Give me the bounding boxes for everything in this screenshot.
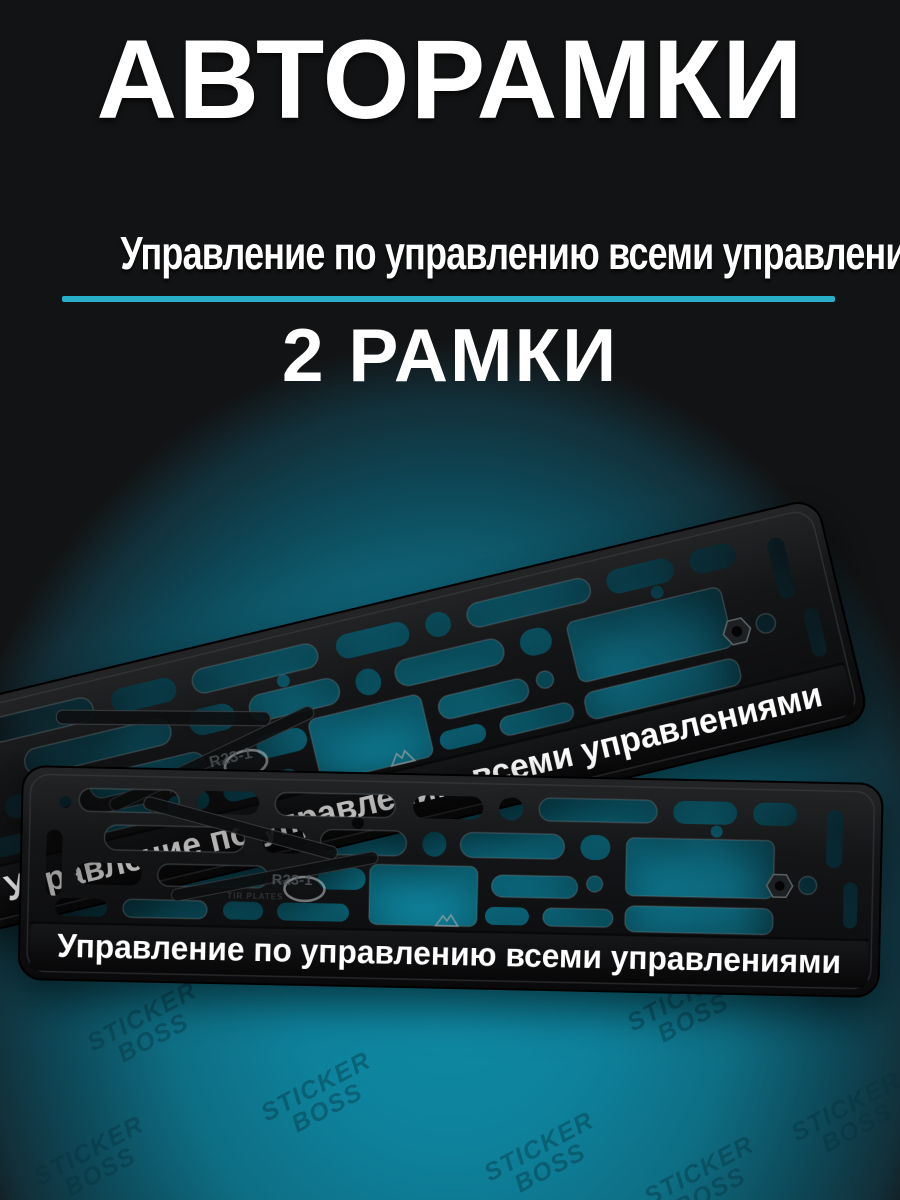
- license-frame-scene: R23-1 TIR PLATES ARS Управление по управ…: [0, 450, 900, 1200]
- product-card: АВТОРАМКИ Управление по управлению всеми…: [0, 0, 900, 1200]
- quantity-label: 2 РАМКИ: [0, 318, 900, 393]
- front-license-frame: [17, 765, 883, 998]
- page-title: АВТОРАМКИ: [0, 24, 900, 136]
- product-subtitle: Управление по управлению всеми управлени…: [0, 226, 900, 280]
- accent-divider: [62, 296, 835, 302]
